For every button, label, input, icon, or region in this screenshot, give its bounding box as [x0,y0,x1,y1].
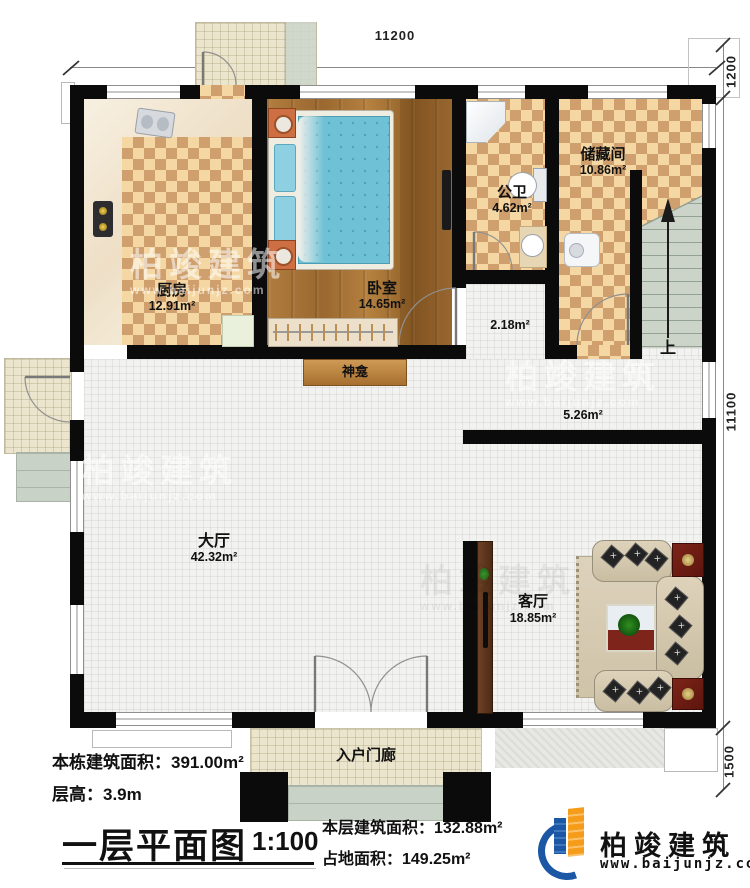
bed-pillow-1 [274,144,296,192]
wall-interior-south [127,345,466,359]
wardrobe-hangers [275,324,391,341]
nightstand-lamp-2 [274,247,293,266]
wall-right-3 [702,418,716,728]
wall-storage-south-stub [559,345,577,359]
bed-sheet-fold [298,116,324,262]
logo-swoosh [528,812,605,888]
stairs-window-right [702,104,716,148]
title-underline [62,862,314,865]
bathroom-window-top [478,85,525,99]
wall-left-2 [70,420,84,461]
wall-top-2 [180,85,200,99]
kitchen-sink [134,107,175,138]
corridor-area: 5.26m² [523,409,643,423]
kitchen-window-top [107,85,180,99]
sink-basin-right [156,116,170,132]
nightstand-lamp [274,115,293,134]
side-cabinet-bottom [672,678,704,710]
logo-tower-blue [554,818,566,854]
plan-scale: 1:100 [252,826,319,857]
right-dimension-label-11100: 11100 [724,372,739,452]
top-porch-step [285,22,316,85]
nightstand-top [268,108,296,138]
wall-bottom-4 [643,712,716,728]
kitchen-label: 厨房 [112,283,232,300]
entry-column-left [240,772,288,822]
wall-left-3 [70,532,84,605]
tv-cabinet-plant [479,568,489,580]
bedroom-tv [442,170,451,230]
top-dimension-line [70,67,716,68]
storage-area: 10.86m² [543,164,663,178]
wall-top-3 [245,85,300,99]
kitchen-tile-rug [122,137,252,345]
company-website: www.baijunjz.com [600,856,750,872]
bathroom-area: 4.62m² [452,202,572,216]
wall-bottom-3 [427,712,523,728]
building-area-text: 本栋建筑面积：391.00m² [52,748,244,773]
top-dimension-label: 11200 [350,28,440,43]
stairs-up-label: 上 [656,340,680,358]
shrine-cabinet: 神龛 [303,359,407,386]
wardrobe [268,318,398,347]
wall-right-1 [702,85,716,104]
hall-area: 42.32m² [154,551,274,565]
left-porch [4,358,72,454]
wall-bottom-2 [232,712,315,728]
storage-door-threshold [577,345,630,359]
water-heater-dial [569,243,584,258]
wall-top-4 [415,85,478,99]
nightstand-bottom [268,240,296,270]
logo-tower-orange [568,807,584,857]
hall-window-bottom [116,712,232,728]
water-heater [564,233,600,267]
shrine-label: 神龛 [342,364,368,379]
living-room-label: 客厅 [473,594,593,611]
hall-window-left-1 [70,461,84,532]
bedroom-area: 14.65m² [322,298,442,312]
stove-burner-2 [99,223,107,231]
kitchen-appliance [222,315,254,347]
stove-burner-1 [99,207,107,215]
wall-living-top [463,430,702,444]
floor-area-text: 本层建筑面积：132.88m² [322,814,503,838]
wall-kitchen-bedroom [252,99,267,345]
side-cabinet-top [672,543,704,577]
left-porch-step [16,452,72,502]
hall-window-left-2 [70,605,84,674]
wall-right-2 [702,148,716,362]
floor-height-text: 层高：3.9m [52,780,142,805]
hall-label: 大厅 [154,533,274,551]
right-dimension-label-1500: 1500 [722,722,737,802]
hallway-area: 2.18m² [450,319,570,333]
kitchen-door-threshold [200,85,245,99]
wall-top-5 [525,85,588,99]
table-plant [618,614,640,636]
living-room-area: 18.85m² [473,612,593,626]
bottom-window-sill [92,730,232,748]
corridor-window-right [702,362,716,418]
entry-porch-label: 入户门廊 [306,748,426,765]
dim-tick [63,61,79,75]
kitchen-stove [93,201,113,237]
bathroom-sink [521,234,544,257]
right-terrace-step [664,728,718,772]
footprint-area-text: 占地面积：149.25m² [322,845,471,869]
wall-left-1 [70,85,84,372]
storage-window-top [588,85,667,99]
wall-bottom-1 [70,712,116,728]
wall-storage-stairs [630,170,642,359]
bedroom-label: 卧室 [322,281,442,298]
right-terrace [495,728,665,768]
bedroom-window-top [300,85,415,99]
wall-bathroom-south [452,270,559,284]
sink-basin-left [140,114,154,130]
bed-pillow-2 [274,196,296,244]
title-underline-shadow [64,868,316,869]
floor-plan-canvas: 11200 1200 11100 1500 [0,0,750,888]
living-window-bottom [523,712,643,728]
bathroom-label: 公卫 [452,185,572,202]
company-logo [538,806,594,876]
kitchen-area: 12.91m² [112,300,232,314]
storage-label: 储藏间 [543,147,663,164]
wall-living-divider [463,541,477,712]
